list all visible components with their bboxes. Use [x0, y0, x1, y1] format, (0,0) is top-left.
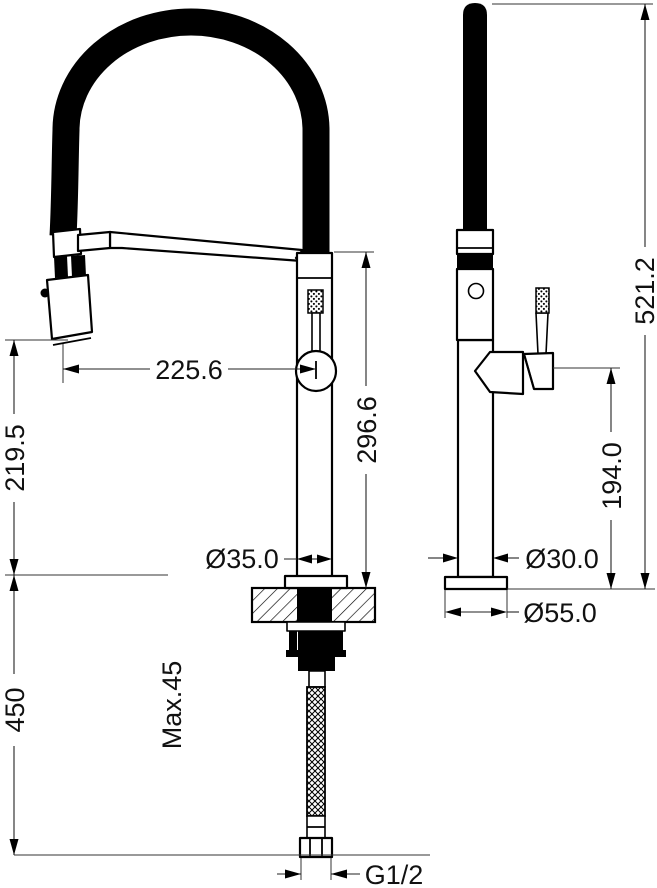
threaded-shank: [297, 588, 332, 622]
dim-arrow: [491, 608, 507, 617]
dim-spout-reach: 225.6: [63, 344, 316, 385]
dim-label-spout-reach: 225.6: [155, 355, 223, 385]
side-handle-stem: [536, 313, 548, 354]
dim-label-side-column-diameter: Ø30.0: [525, 544, 599, 574]
escutcheon-base: [285, 576, 347, 588]
dim-arrow: [607, 368, 616, 384]
hose-arch: [63, 22, 316, 253]
mounting-bolt-right: [335, 631, 343, 652]
dim-arrow: [445, 608, 461, 617]
dim-arrow: [493, 554, 508, 563]
mounting-washer: [287, 622, 345, 631]
dim-arrow: [10, 340, 19, 356]
dim-arrow: [641, 573, 650, 589]
dim-overall-height: 521.2: [492, 4, 657, 589]
mounting-nut: [298, 631, 335, 671]
side-head-body: [457, 269, 493, 340]
faucet-technical-drawing: 225.6 219.5 450 Max.45 Ø35.0: [0, 0, 657, 888]
dim-base-diameter: Ø55.0: [445, 590, 597, 628]
spray-head: [41, 229, 111, 345]
dim-arrow: [362, 572, 371, 588]
dim-side-column-diameter: Ø30.0: [428, 544, 599, 574]
dim-label-spray-head-height: 219.5: [0, 424, 30, 492]
dim-arrow: [607, 573, 616, 589]
spray-head-cap-line: [53, 338, 91, 345]
side-black-band: [457, 254, 493, 269]
dim-arrow: [362, 252, 371, 268]
dim-arrow: [10, 575, 19, 591]
front-view: [41, 22, 376, 857]
dim-label-overall-height: 521.2: [630, 257, 657, 325]
dim-arrow: [10, 559, 19, 575]
hose-adapter: [309, 671, 325, 687]
dim-spray-head-height: 219.5: [0, 340, 168, 575]
dim-arrow: [641, 4, 650, 20]
mounting-hardware: [286, 622, 346, 687]
dim-label-handle-height: 194.0: [597, 442, 627, 510]
spray-head-grip-band-2: [71, 255, 86, 277]
side-handle-knurl: [536, 288, 549, 313]
side-base-flange: [445, 577, 507, 589]
dim-label-thread-size: G1/2: [365, 860, 424, 888]
hose-hex-nut: [300, 838, 332, 857]
hose-tube-side: [463, 3, 487, 230]
spray-head-holder: [53, 229, 81, 257]
dim-max-counter-thickness: Max.45: [157, 661, 187, 750]
handle-knurl-front: [308, 290, 323, 313]
spout-arm: [110, 232, 302, 261]
dim-label-body-height: 296.6: [352, 396, 382, 464]
countertop-section: [252, 576, 375, 622]
dim-label-body-diameter: Ø35.0: [205, 544, 279, 574]
dim-thread-size: G1/2: [277, 858, 423, 888]
dim-arrow: [331, 870, 347, 879]
dim-body-height: 296.6: [334, 252, 382, 588]
supply-hose: [300, 687, 332, 857]
spray-head-connector: [78, 232, 110, 251]
dim-arrow: [443, 554, 458, 563]
dim-label-max-thickness: Max.45: [157, 661, 187, 750]
drawing-sheet: 225.6 219.5 450 Max.45 Ø35.0: [0, 0, 657, 888]
side-body-port: [469, 284, 484, 299]
faucet-body-column: [296, 253, 336, 588]
braided-hose: [307, 687, 325, 816]
mounting-bolt-left: [289, 631, 297, 652]
handle-stem-front: [312, 313, 320, 352]
side-collar: [457, 230, 493, 254]
mounting-bolt-left-foot: [286, 650, 300, 657]
dim-arrow: [285, 870, 301, 879]
dim-label-hose-drop: 450: [0, 687, 30, 732]
spray-head-grip-band-1: [54, 256, 68, 278]
dim-label-base-diameter: Ø55.0: [523, 598, 597, 628]
spray-head-body: [47, 275, 92, 339]
dim-arrow: [10, 839, 19, 855]
dim-arrow: [63, 365, 79, 374]
